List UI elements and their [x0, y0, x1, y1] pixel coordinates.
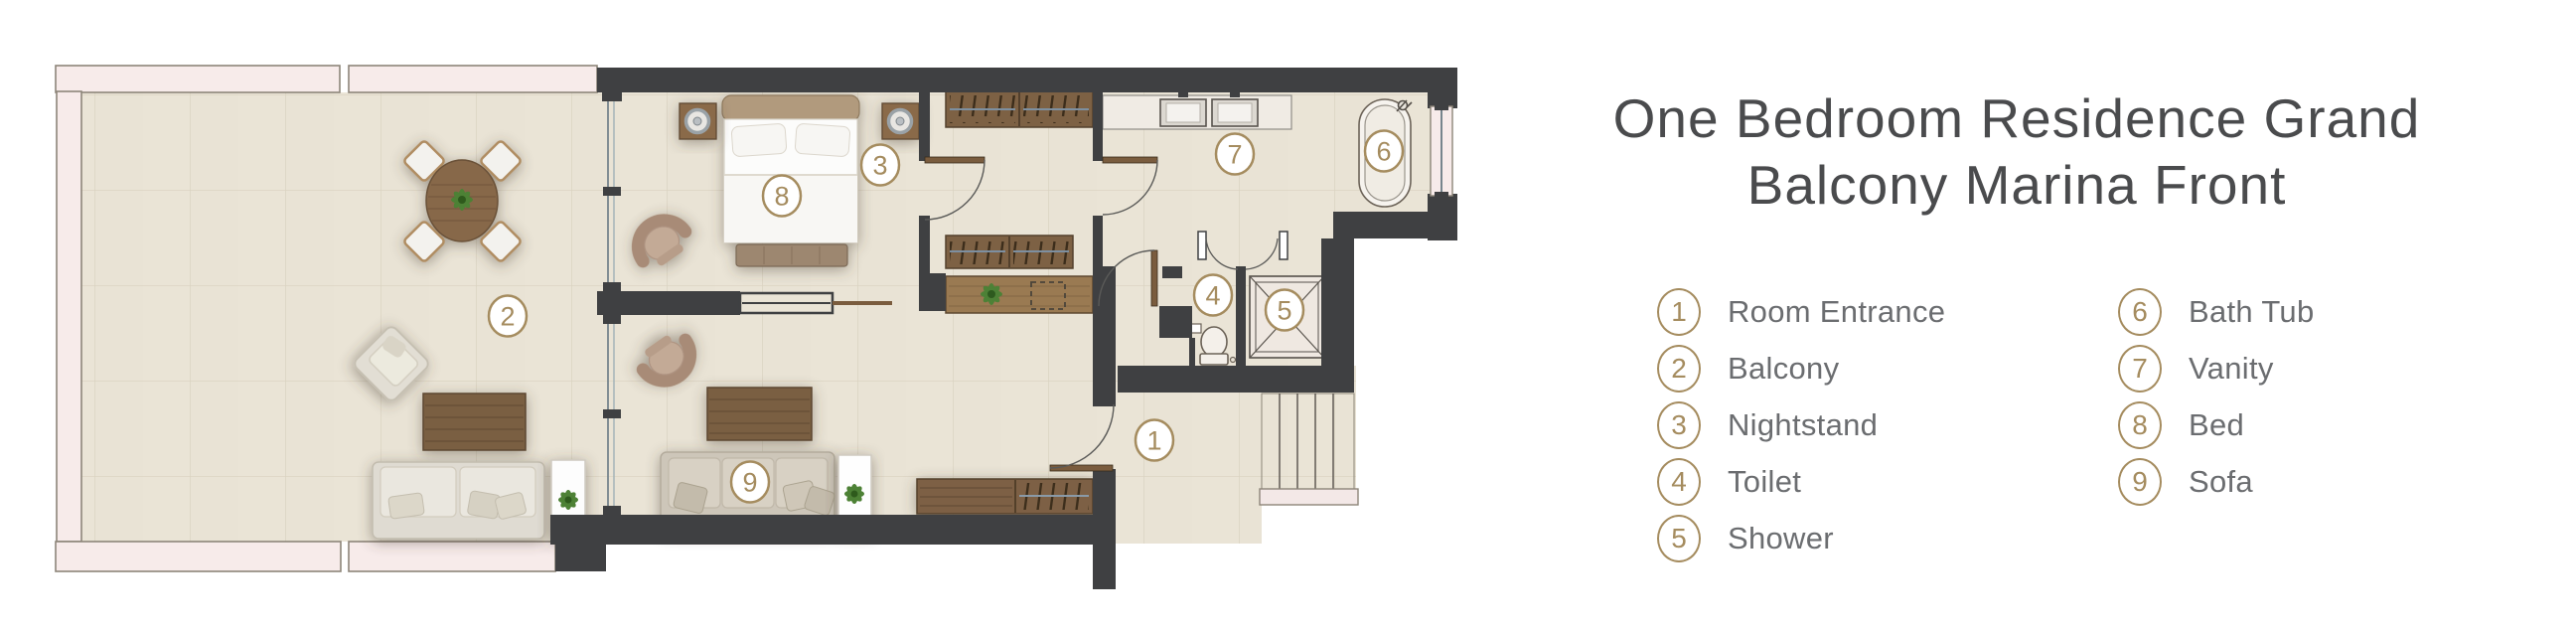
legend-label: Bath Tub — [2189, 294, 2315, 330]
legend-number-badge: 7 — [2118, 345, 2162, 393]
legend-item-vanity: 7Vanity — [2118, 346, 2315, 392]
balcony-coffee-table — [423, 394, 526, 450]
marker-shower: 5 — [1266, 290, 1303, 331]
wardrobe-north — [946, 91, 1093, 127]
legend-item-toilet: 4Toilet — [1657, 459, 2118, 505]
faucet-icon — [1178, 92, 1188, 97]
stair-landing — [1260, 489, 1358, 505]
legend-number-badge: 1 — [1657, 288, 1701, 336]
legend-item-nightstand: 3Nightstand — [1657, 402, 2118, 448]
info-panel: One Bedroom Residence Grand Balcony Mari… — [1550, 0, 2523, 631]
title-line-1: One Bedroom Residence Grand — [1613, 87, 2421, 149]
plant-icon — [451, 189, 473, 211]
legend-column-1: 1Room Entrance 2Balcony 3Nightstand 4Toi… — [1657, 289, 2118, 572]
marker-number: 5 — [1277, 296, 1291, 326]
sliding-door-leaf — [833, 301, 892, 305]
marker-number: 4 — [1205, 281, 1220, 311]
legend-number-badge: 8 — [2118, 401, 2162, 449]
legend-label: Sofa — [2189, 464, 2253, 500]
legend-number-badge: 3 — [1657, 401, 1701, 449]
marker-number: 6 — [1376, 137, 1391, 167]
legend-label: Room Entrance — [1728, 294, 1945, 330]
legend-number-badge: 2 — [1657, 345, 1701, 393]
plant-icon — [558, 490, 578, 510]
plant-icon — [844, 484, 864, 504]
legend-label: Shower — [1728, 521, 1834, 556]
marker-room-entrance: 1 — [1136, 420, 1173, 461]
legend-label: Balcony — [1728, 351, 1839, 387]
minibar-cabinet — [917, 479, 1093, 514]
faucet-icon — [1230, 92, 1240, 97]
title-line-2: Balcony Marina Front — [1747, 154, 2287, 216]
legend-item-sofa: 9Sofa — [2118, 459, 2315, 505]
marker-bathtub: 6 — [1365, 131, 1403, 172]
console-table — [946, 276, 1093, 313]
legend-label: Nightstand — [1728, 407, 1878, 443]
legend-number-badge: 9 — [2118, 458, 2162, 506]
legend-item-room-entrance: 1Room Entrance — [1657, 289, 2118, 335]
marker-toilet: 4 — [1194, 275, 1232, 316]
legend-item-bed: 8Bed — [2118, 402, 2315, 448]
vanity-counter — [1103, 92, 1291, 129]
legend-item-balcony: 2Balcony — [1657, 346, 2118, 392]
marker-number: 8 — [774, 182, 789, 212]
wardrobe-south — [946, 236, 1073, 268]
legend-label: Vanity — [2189, 351, 2274, 387]
living-coffee-table — [707, 388, 812, 440]
page-title: One Bedroom Residence Grand Balcony Mari… — [1550, 85, 2484, 219]
legend-number-badge: 6 — [2118, 288, 2162, 336]
marker-bed: 8 — [763, 176, 801, 217]
marker-balcony: 2 — [489, 296, 527, 337]
nightstand-right — [882, 103, 919, 139]
bath-window — [1431, 104, 1452, 198]
marker-number: 9 — [742, 468, 757, 498]
legend-label: Toilet — [1728, 464, 1801, 500]
plant-icon — [981, 283, 1002, 305]
legend-number-badge: 4 — [1657, 458, 1701, 506]
marker-nightstand: 3 — [861, 145, 899, 186]
balcony-sofa — [373, 462, 544, 539]
marker-number: 3 — [872, 151, 887, 181]
marker-number: 1 — [1146, 426, 1161, 456]
legend-item-shower: 5Shower — [1657, 516, 2118, 561]
legend-label: Bed — [2189, 407, 2244, 443]
marker-number: 2 — [500, 302, 515, 332]
legend-item-bath-tub: 6Bath Tub — [2118, 289, 2315, 335]
marker-vanity: 7 — [1216, 134, 1254, 175]
page: 1 2 3 4 5 6 7 8 9 One Bedroom Residence … — [0, 0, 2576, 631]
marker-number: 7 — [1227, 140, 1242, 170]
floor-plan: 1 2 3 4 5 6 7 8 9 — [0, 0, 1490, 631]
legend-column-2: 6Bath Tub 7Vanity 8Bed 9Sofa — [2118, 289, 2315, 572]
tissue-holder — [1191, 324, 1201, 333]
nightstand-left — [680, 103, 716, 139]
marker-sofa: 9 — [731, 462, 769, 503]
legend: 1Room Entrance 2Balcony 3Nightstand 4Toi… — [1657, 289, 2315, 572]
legend-number-badge: 5 — [1657, 515, 1701, 562]
